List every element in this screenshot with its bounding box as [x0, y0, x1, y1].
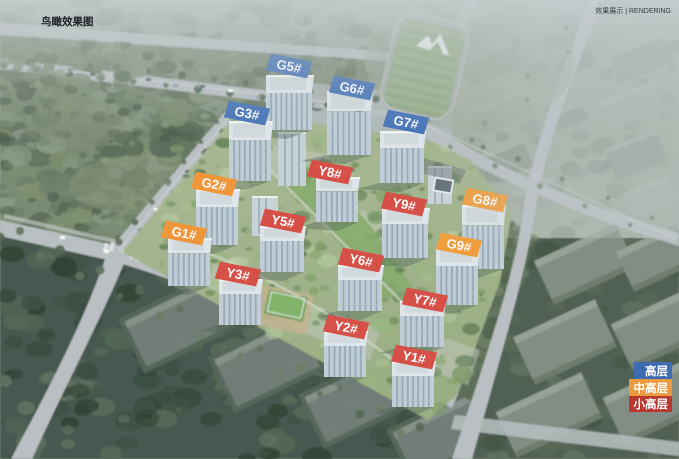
svg-text:高层: 高层 [645, 364, 668, 378]
svg-text:小高层: 小高层 [633, 397, 669, 411]
svg-text:效果展示 | RENDERING: 效果展示 | RENDERING [595, 6, 671, 15]
svg-text:中高层: 中高层 [634, 381, 669, 395]
svg-text:鸟瞰效果图: 鸟瞰效果图 [41, 15, 94, 28]
